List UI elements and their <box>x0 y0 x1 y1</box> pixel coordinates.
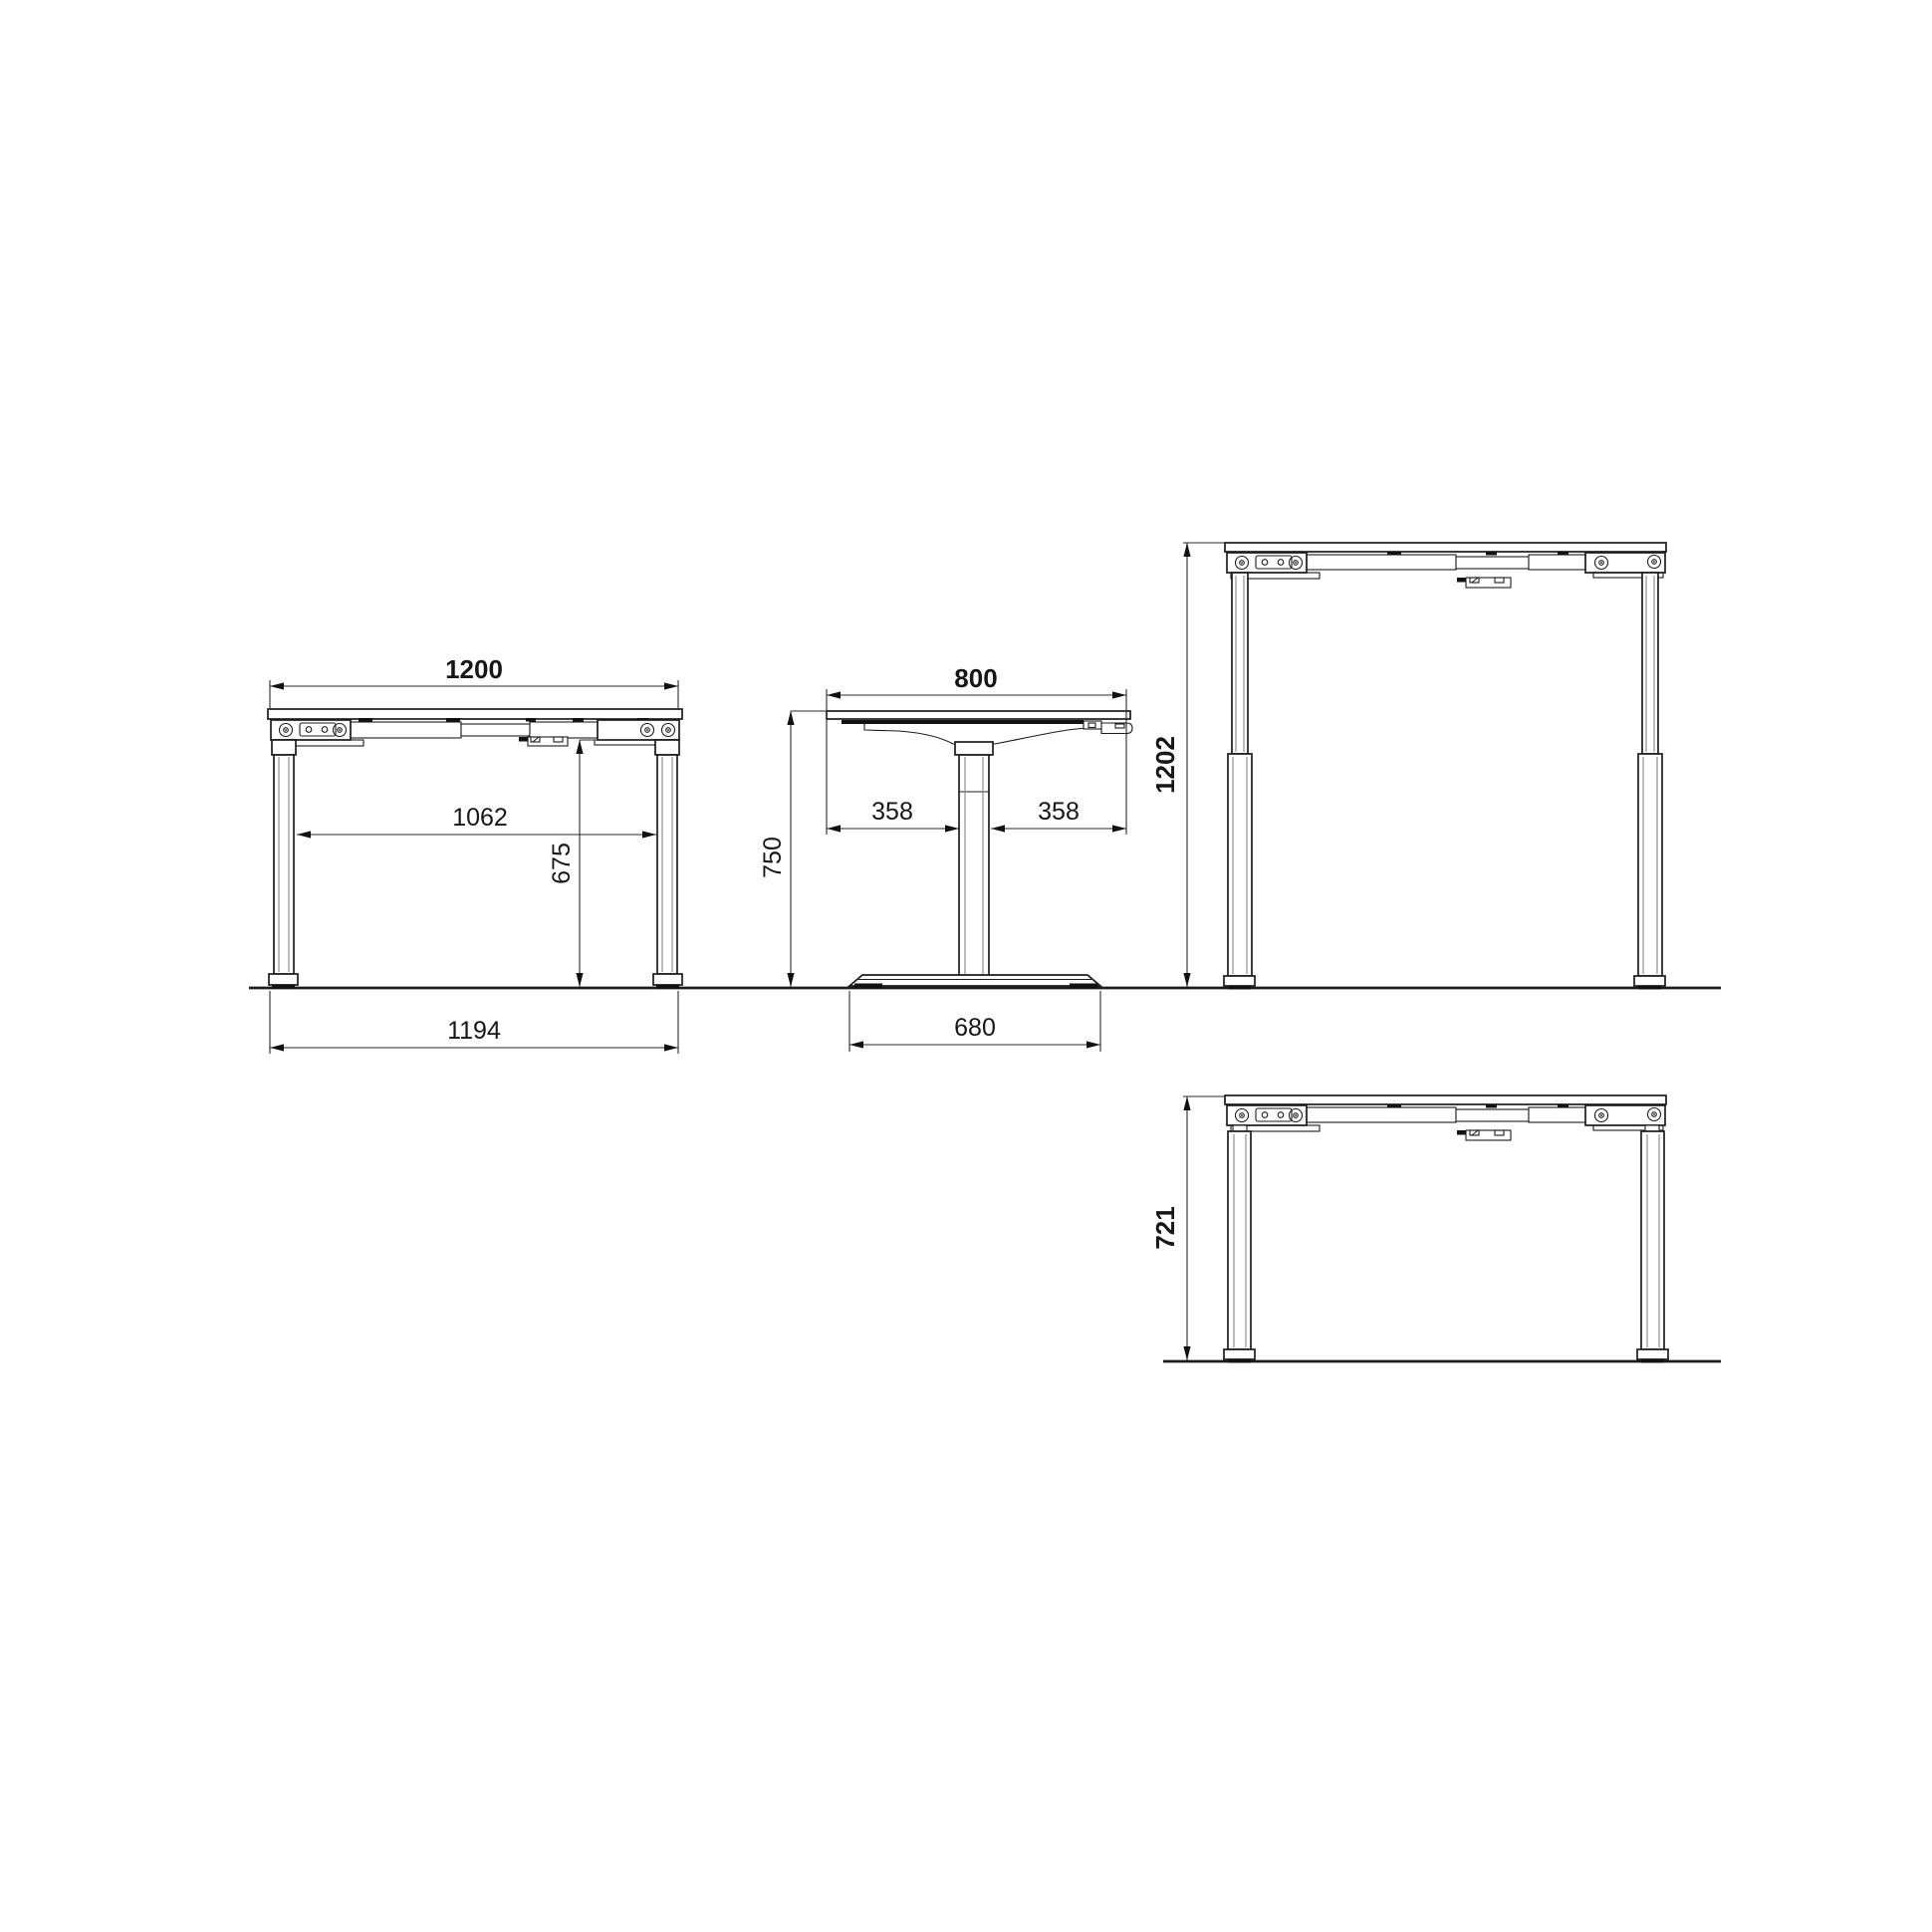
mount-plate <box>1256 556 1292 569</box>
beam-screw-slot <box>526 718 536 722</box>
dim-label-min-height: 721 <box>1150 1206 1180 1249</box>
dim-label-top-width: 1200 <box>445 654 503 684</box>
beam-screw-slot <box>1558 552 1569 556</box>
foot-plate <box>1637 1349 1668 1359</box>
dim-label-foot-length: 680 <box>954 1014 996 1042</box>
foot-pad <box>1638 986 1661 990</box>
leg-right <box>653 740 682 989</box>
foot-pad <box>656 985 679 989</box>
beam-rail-left <box>1307 1107 1456 1122</box>
beam-screw-slot <box>1387 552 1401 556</box>
desk-dimension-drawing: 1200 1062 675 1194 <box>0 0 1932 1932</box>
mount-plate <box>1256 1108 1292 1121</box>
foot-plate <box>1224 976 1255 986</box>
beam-screw-slot <box>1558 1104 1569 1108</box>
foot-plate <box>1224 1349 1255 1359</box>
dim-label-foot-span: 1194 <box>447 1017 501 1045</box>
foot-plate <box>269 974 298 985</box>
column <box>955 742 993 976</box>
dim-label-underframe-height: 675 <box>548 843 576 884</box>
tabletop-side <box>827 711 1130 719</box>
foot-plate <box>653 974 682 985</box>
beam-screw-slot <box>1486 1104 1497 1108</box>
foot-pad <box>1228 986 1251 990</box>
beam-screw-slot <box>1387 1104 1401 1108</box>
leg-left <box>269 740 298 989</box>
beam-rail-right <box>1529 1107 1585 1122</box>
tabletop <box>268 709 682 719</box>
beam-rail-right <box>1529 555 1585 570</box>
base-foot <box>849 975 1100 988</box>
dim-label-height-750: 750 <box>759 837 787 878</box>
foot-pad <box>854 984 882 989</box>
beam-screw-slot <box>359 718 372 722</box>
frame-top <box>1225 1095 1666 1104</box>
mount-plate <box>300 723 336 736</box>
beam-rail-right <box>530 722 598 738</box>
foot-pad <box>1641 1359 1664 1363</box>
beam-screw-slot <box>1486 552 1497 556</box>
mount-bracket-right <box>598 720 679 740</box>
dim-label-clear-width: 1062 <box>452 804 508 832</box>
dim-label-max-height: 1202 <box>1150 736 1180 794</box>
beam-rail-mid <box>461 724 530 736</box>
foot-plate <box>1634 976 1665 986</box>
beam-rail-left <box>1307 555 1456 570</box>
dim-label-depth: 800 <box>954 663 997 693</box>
leg-right <box>1637 1125 1668 1363</box>
leg-left <box>1224 1125 1255 1363</box>
foot-pad <box>1070 984 1097 989</box>
beam-rail-mid <box>1456 1109 1529 1121</box>
frame-top <box>1225 543 1666 552</box>
dim-label-overhang-right: 358 <box>1038 798 1080 826</box>
beam-screw-slot <box>573 718 584 722</box>
drawing-canvas: 1200 1062 675 1194 <box>0 0 1932 1932</box>
foot-pad <box>1228 1359 1251 1363</box>
foot-pad <box>272 985 295 989</box>
beam-rail-mid <box>1456 557 1529 569</box>
beam-screw-slot <box>446 718 460 722</box>
dim-label-overhang-left: 358 <box>871 798 913 826</box>
beam-rail-left <box>351 722 461 738</box>
